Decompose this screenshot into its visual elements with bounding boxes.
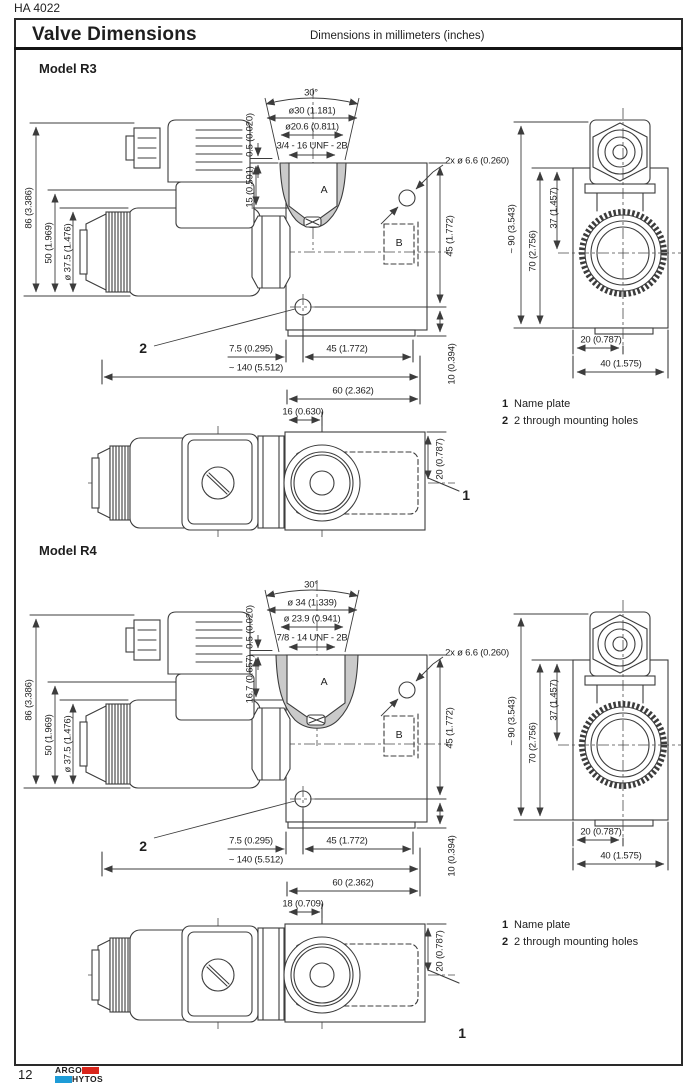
dim-endview-70: 70 (2.756) [528, 230, 538, 271]
dim-overall-height: 86 (3.386) [24, 187, 34, 228]
dim-cavity-angle: 30° [304, 580, 318, 590]
legend: 1 Name plate 2 2 through mounting holes [502, 396, 638, 430]
legend-num: 2 [502, 934, 514, 951]
dim-height-45: 45 (1.772) [445, 707, 455, 748]
dim-coil-height: 50 (1.969) [44, 714, 54, 755]
dim-thread-spec: 7/8 - 14 UNF - 2B [276, 633, 347, 643]
port-b-label: B [396, 730, 403, 741]
dim-body-length: 60 (2.362) [332, 386, 373, 396]
dim-mount-holes: 2x ø 6.6 (0.260) [445, 648, 509, 658]
legend-num: 2 [502, 413, 514, 430]
dim-port-center: 20 (0.787) [435, 438, 445, 479]
dim-thread-spec: 3/4 - 16 UNF - 2B [276, 141, 347, 151]
model-r4-heading: Model R4 [39, 543, 97, 558]
dim-endview-40: 40 (1.575) [600, 359, 641, 369]
dim-cavity-inner-dia: ø20.6 (0.811) [285, 122, 339, 132]
dim-hole-offset: 7.5 (0.295) [229, 344, 273, 354]
dim-width-45: 45 (1.772) [326, 836, 367, 846]
dim-endview-overall: ~ 90 (3.543) [507, 204, 517, 253]
dim-endview-40: 40 (1.575) [600, 851, 641, 861]
dim-mount-holes: 2x ø 6.6 (0.260) [445, 156, 509, 166]
dim-base-height: 10 (0.394) [447, 343, 457, 384]
legend-item: 2 2 through mounting holes [502, 413, 638, 430]
dim-hole-offset: 7.5 (0.295) [229, 836, 273, 846]
dim-endview-20: 20 (0.787) [580, 827, 621, 837]
dim-endview-70: 70 (2.756) [528, 722, 538, 763]
legend-item: 2 2 through mounting holes [502, 934, 638, 951]
legend-item: 1 Name plate [502, 917, 638, 934]
logo-argo-text: ARGO [55, 1066, 82, 1075]
logo-red-block [82, 1067, 99, 1074]
datasheet-page: HA 4022 Valve Dimensions Dimensions in m… [0, 0, 697, 1091]
technical-drawing-r4 [0, 492, 697, 1052]
dim-coil-diameter: ø 37.5 (1.476) [63, 224, 73, 281]
legend-num: 1 [502, 396, 514, 413]
dim-chamfer-depth: 0.5 (0.020) [245, 113, 255, 157]
port-b-label: B [396, 238, 403, 249]
dim-coil-height: 50 (1.969) [44, 222, 54, 263]
dim-cavity-angle: 30° [304, 88, 318, 98]
argo-hytos-logo: ARGO HYTOS [55, 1066, 103, 1084]
legend-text: 2 through mounting holes [514, 934, 638, 951]
dim-body-length: 60 (2.362) [332, 878, 373, 888]
dim-port-depth: 15 (0.591) [245, 166, 255, 207]
model-r3-heading: Model R3 [39, 61, 97, 76]
callout-2: 2 [139, 341, 147, 355]
callout-2: 2 [139, 839, 147, 853]
legend-text: 2 through mounting holes [514, 413, 638, 430]
dim-overall-height: 86 (3.386) [24, 679, 34, 720]
legend: 1 Name plate 2 2 through mounting holes [502, 917, 638, 951]
dim-height-45: 45 (1.772) [445, 215, 455, 256]
dim-port-offset: 18 (0.709) [282, 899, 323, 909]
logo-blue-block [55, 1076, 72, 1083]
dim-base-height: 10 (0.394) [447, 835, 457, 876]
callout-1: 1 [458, 1026, 466, 1040]
port-a-label: A [321, 677, 328, 688]
logo-hytos-text: HYTOS [72, 1075, 103, 1084]
legend-text: Name plate [514, 917, 570, 934]
dim-width-45: 45 (1.772) [326, 344, 367, 354]
dim-overall-length: ~ 140 (5.512) [229, 855, 283, 865]
dim-port-depth: 16.7 (0.657) [245, 655, 255, 704]
dim-cavity-outer-dia: ø 34 (1.339) [287, 598, 336, 608]
dim-endview-37: 37 (1.457) [549, 679, 559, 720]
legend-text: Name plate [514, 396, 570, 413]
technical-drawing-r3 [0, 0, 697, 560]
dim-chamfer-depth: 0.5 (0.020) [245, 605, 255, 649]
dim-port-offset: 16 (0.630) [282, 407, 323, 417]
page-number: 12 [18, 1067, 32, 1082]
section-model-r4: Model R4 30° ø 34 (1.339) ø 23.9 (0.941)… [0, 492, 697, 1052]
dim-port-center: 20 (0.787) [435, 930, 445, 971]
dim-coil-diameter: ø 37.5 (1.476) [63, 716, 73, 773]
dim-endview-20: 20 (0.787) [580, 335, 621, 345]
legend-item: 1 Name plate [502, 396, 638, 413]
dim-cavity-inner-dia: ø 23.9 (0.941) [284, 614, 341, 624]
dim-endview-37: 37 (1.457) [549, 187, 559, 228]
port-a-label: A [321, 185, 328, 196]
dim-cavity-outer-dia: ø30 (1.181) [289, 106, 336, 116]
legend-num: 1 [502, 917, 514, 934]
dim-endview-overall: ~ 90 (3.543) [507, 696, 517, 745]
dim-overall-length: ~ 140 (5.512) [229, 363, 283, 373]
section-model-r3: Model R3 30° ø30 (1.181) ø20.6 (0.811) 3… [0, 0, 697, 560]
